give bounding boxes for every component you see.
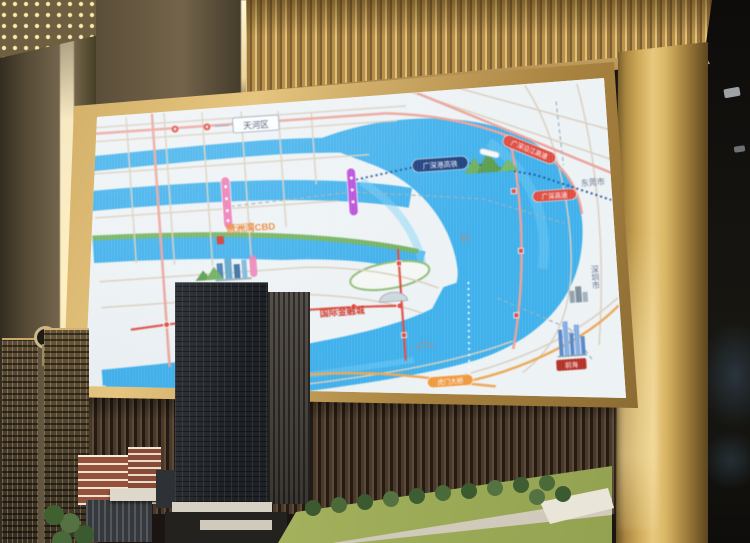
model-trees-left: [44, 505, 64, 525]
model-main-tower: [175, 282, 268, 507]
screen-glow-reflection: [702, 430, 750, 490]
hotel-h-icon: H: [460, 230, 470, 246]
model-entry-deck: [200, 520, 272, 530]
tianhe-district-label: 天河区: [243, 119, 270, 131]
pazhou-badge: [217, 236, 225, 244]
shenzhen-city-label: 深圳市: [590, 265, 601, 291]
model-tree-row: [305, 500, 321, 516]
model-tower-left-a: [2, 338, 38, 543]
qianhai-pill: 前海: [556, 358, 587, 371]
model-podium-block: [86, 500, 152, 542]
model-main-tower-side: [268, 292, 310, 504]
showroom-photo: 天河区 广深港高铁 广深沿江高速 广深高速 南沙大桥: [0, 0, 750, 543]
dongguan-city-label: 东莞市: [580, 176, 605, 188]
